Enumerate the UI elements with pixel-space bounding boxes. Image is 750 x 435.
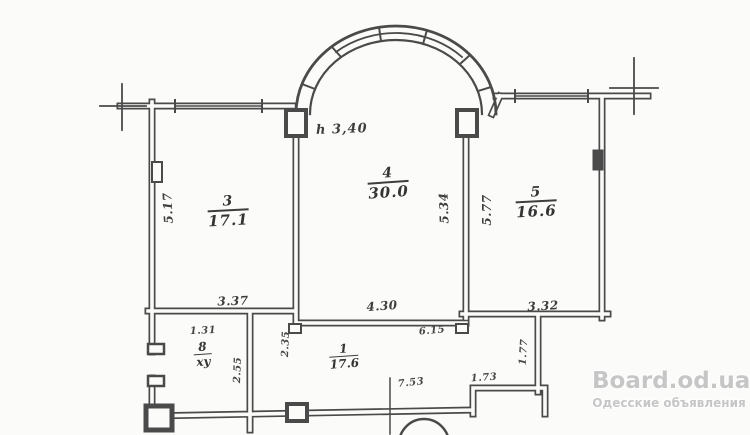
dimension-label: 1.31 — [190, 325, 217, 337]
wall-jog-left — [152, 162, 162, 182]
arch-springer-right — [457, 110, 477, 136]
dimension-label: 3.32 — [527, 298, 559, 314]
wall-notch-right — [593, 150, 603, 170]
room-label-8: 8 ху — [193, 340, 213, 370]
door-jamb-bottom — [148, 376, 164, 386]
arch-springer-left — [286, 110, 306, 136]
columns-and-jambs — [146, 110, 603, 430]
room-area: 16.6 — [516, 202, 557, 222]
walls-core — [120, 96, 648, 430]
dimension-label: 3.37 — [217, 293, 249, 308]
column-bottom-left — [146, 406, 172, 430]
fixture-circle — [399, 419, 449, 435]
room-area: 17.1 — [208, 211, 249, 231]
room-label-5: 5 16.6 — [515, 184, 557, 221]
room-number: 5 — [515, 184, 556, 203]
room-label-3: 3 17.1 — [207, 193, 249, 230]
dimension-label: 5.34 — [436, 192, 451, 224]
room-number: 3 — [207, 193, 248, 212]
dimension-label: 1.73 — [470, 372, 497, 385]
door-jamb-top — [148, 344, 164, 354]
dimension-label: 1.77 — [518, 338, 531, 365]
walls-outline — [120, 96, 648, 430]
jamb-center-right — [456, 324, 468, 333]
room-area: 30.0 — [368, 182, 410, 203]
room-area: ху — [194, 354, 213, 370]
ceiling-height-note: h 3,40 — [316, 121, 368, 138]
dimension-label: 6.15 — [418, 324, 445, 337]
room-area: 17.6 — [329, 356, 359, 372]
axis-marker-right — [610, 58, 658, 114]
arch-bay-window — [296, 26, 496, 114]
scanned-floorplan-page: h 3,40 3 17.1 4 30.0 5 16.6 8 ху 1 17.6 … — [0, 0, 750, 435]
watermark-subtitle: Одесские объявления — [592, 396, 746, 410]
room-label-4: 4 30.0 — [367, 165, 410, 203]
dimension-label: 2.55 — [232, 357, 244, 384]
dimension-label: 5.17 — [160, 192, 176, 224]
room-number: 8 — [193, 340, 212, 355]
dimension-label: 2.35 — [280, 331, 292, 358]
watermark-site-name: Board.od.ua — [592, 369, 746, 394]
dimension-label: 4.30 — [366, 298, 398, 314]
dimension-label: 5.77 — [480, 194, 494, 225]
room-label-1: 1 17.6 — [328, 342, 359, 373]
column-bottom-mid — [287, 404, 307, 421]
arch-mullions — [302, 27, 491, 91]
